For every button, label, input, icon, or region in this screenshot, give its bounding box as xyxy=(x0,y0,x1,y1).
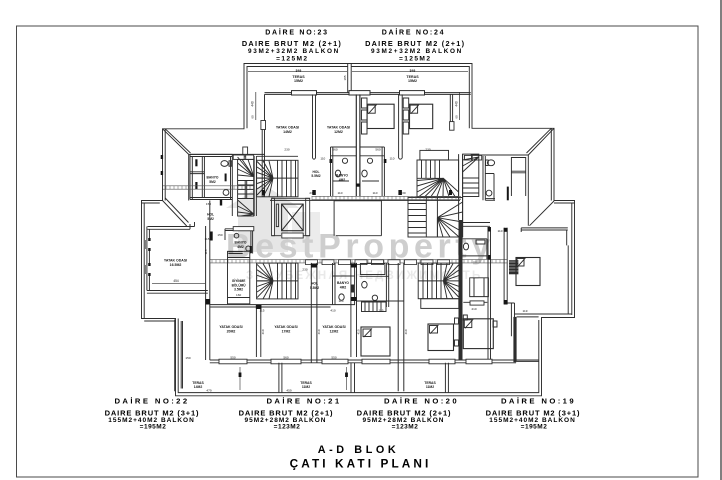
svg-text:12M2: 12M2 xyxy=(334,130,343,134)
svg-text:YATAK ODASI: YATAK ODASI xyxy=(322,325,345,329)
svg-text:115: 115 xyxy=(205,237,210,241)
svg-text:14M2: 14M2 xyxy=(194,385,203,389)
svg-text:4M2: 4M2 xyxy=(237,245,244,249)
svg-text:15M2: 15M2 xyxy=(408,79,417,83)
svg-text:110: 110 xyxy=(338,191,343,195)
svg-text:479: 479 xyxy=(206,389,211,393)
svg-text:93M2+32M2 BALKON: 93M2+32M2 BALKON xyxy=(371,48,463,55)
svg-text:=125M2: =125M2 xyxy=(276,56,308,63)
svg-text:115: 115 xyxy=(379,309,384,313)
svg-text:410: 410 xyxy=(404,329,408,334)
svg-text:16.5M2: 16.5M2 xyxy=(170,263,182,267)
svg-text:HOL: HOL xyxy=(313,170,320,174)
svg-text:BANYO: BANYO xyxy=(207,176,219,180)
svg-text:410: 410 xyxy=(330,309,335,313)
svg-text:410: 410 xyxy=(317,329,321,334)
svg-text:11M2: 11M2 xyxy=(426,385,434,389)
svg-text:20M2: 20M2 xyxy=(227,330,236,334)
svg-text:459: 459 xyxy=(286,389,291,393)
svg-text:230: 230 xyxy=(302,268,307,272)
svg-text:12M2: 12M2 xyxy=(330,330,339,334)
svg-text:DAİRE NO:19: DAİRE NO:19 xyxy=(501,396,576,405)
svg-text:410: 410 xyxy=(471,307,476,311)
svg-text:DAİRE NO:23: DAİRE NO:23 xyxy=(265,28,329,36)
svg-text:DAIRE BRUT M2 (2+1): DAIRE BRUT M2 (2+1) xyxy=(242,39,342,48)
svg-text:150: 150 xyxy=(217,233,222,237)
svg-text:150: 150 xyxy=(185,356,190,360)
svg-text:550: 550 xyxy=(331,355,336,359)
svg-text:119: 119 xyxy=(523,309,528,313)
svg-text:560: 560 xyxy=(375,148,380,152)
svg-text:150: 150 xyxy=(206,202,211,206)
svg-text:115: 115 xyxy=(204,249,208,254)
svg-text:560: 560 xyxy=(283,355,288,359)
svg-text:=195M2: =195M2 xyxy=(521,424,548,431)
svg-text:230: 230 xyxy=(284,148,289,152)
svg-text:4M2: 4M2 xyxy=(339,178,346,182)
svg-text:560: 560 xyxy=(332,148,337,152)
svg-text:YATAK ODASI: YATAK ODASI xyxy=(276,125,299,129)
svg-text:BANYO: BANYO xyxy=(336,174,348,178)
svg-text:4M2: 4M2 xyxy=(340,285,347,289)
svg-text:YATAK ODASI: YATAK ODASI xyxy=(164,259,187,263)
svg-text:160: 160 xyxy=(236,293,241,297)
svg-text:ÇATI KATI PLANI: ÇATI KATI PLANI xyxy=(290,456,432,470)
svg-text:93M2+32M2 BALKON: 93M2+32M2 BALKON xyxy=(248,48,340,55)
svg-text:DAİRE NO:22: DAİRE NO:22 xyxy=(114,396,189,405)
svg-text:=123M2: =123M2 xyxy=(392,424,419,431)
svg-text:410: 410 xyxy=(261,329,265,334)
svg-text:110: 110 xyxy=(373,191,378,195)
svg-text:11M2: 11M2 xyxy=(302,385,310,389)
svg-text:YATAK ODASI: YATAK ODASI xyxy=(327,125,350,129)
svg-text:17M2: 17M2 xyxy=(282,330,291,334)
svg-text:BÖLÜMÜ: BÖLÜMÜ xyxy=(232,282,247,287)
svg-text:YATAK ODASI: YATAK ODASI xyxy=(219,325,242,329)
svg-text:5.5M2: 5.5M2 xyxy=(311,174,320,178)
svg-text:DAİRE NO:24: DAİRE NO:24 xyxy=(382,28,446,36)
svg-text:454: 454 xyxy=(173,279,179,283)
svg-text:=123M2: =123M2 xyxy=(274,424,301,431)
svg-text:15M2: 15M2 xyxy=(294,79,303,83)
svg-text:410: 410 xyxy=(357,329,361,334)
svg-text:DAİRE NO:20: DAİRE NO:20 xyxy=(384,396,459,405)
svg-text:440: 440 xyxy=(251,101,255,107)
svg-text:230: 230 xyxy=(425,148,430,152)
svg-text:110: 110 xyxy=(320,156,325,160)
svg-text:60: 60 xyxy=(455,115,459,119)
svg-text:5M2: 5M2 xyxy=(209,180,216,184)
svg-text:185: 185 xyxy=(343,75,347,80)
svg-text:YATAK ODASI: YATAK ODASI xyxy=(274,325,297,329)
svg-text:=195M2: =195M2 xyxy=(140,424,167,431)
svg-text:=125M2: =125M2 xyxy=(399,56,431,63)
svg-text:14M2: 14M2 xyxy=(283,130,292,134)
svg-text:110: 110 xyxy=(339,299,344,303)
svg-text:110: 110 xyxy=(498,229,503,233)
svg-text:5M2: 5M2 xyxy=(207,217,214,221)
svg-text:3.5M2: 3.5M2 xyxy=(234,288,243,292)
svg-text:60: 60 xyxy=(251,115,255,119)
svg-text:440: 440 xyxy=(455,101,459,107)
svg-text:DAİRE NO:21: DAİRE NO:21 xyxy=(266,396,341,405)
svg-text:A-D BLOK: A-D BLOK xyxy=(318,444,400,456)
svg-text:110: 110 xyxy=(390,156,395,160)
svg-text:550: 550 xyxy=(230,355,235,359)
svg-text:DAIRE BRUT M2 (2+1): DAIRE BRUT M2 (2+1) xyxy=(365,39,465,48)
svg-text:115: 115 xyxy=(260,309,265,313)
svg-text:BANYO: BANYO xyxy=(337,281,349,285)
